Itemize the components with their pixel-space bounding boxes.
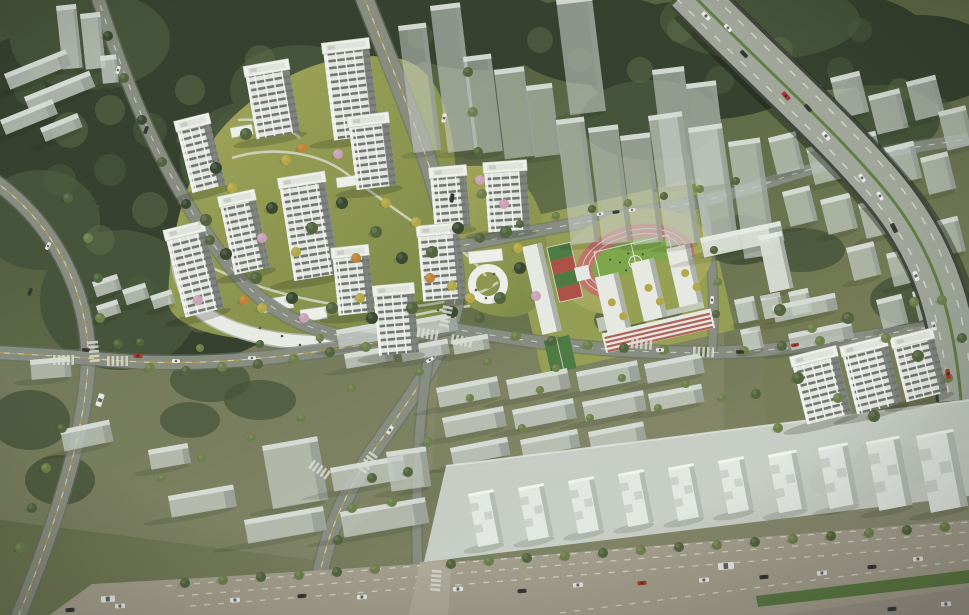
aerial-masterplan-render xyxy=(0,0,969,615)
vignette xyxy=(0,0,969,615)
aerial-city-render xyxy=(0,0,969,615)
layer-atmosphere xyxy=(0,0,969,615)
